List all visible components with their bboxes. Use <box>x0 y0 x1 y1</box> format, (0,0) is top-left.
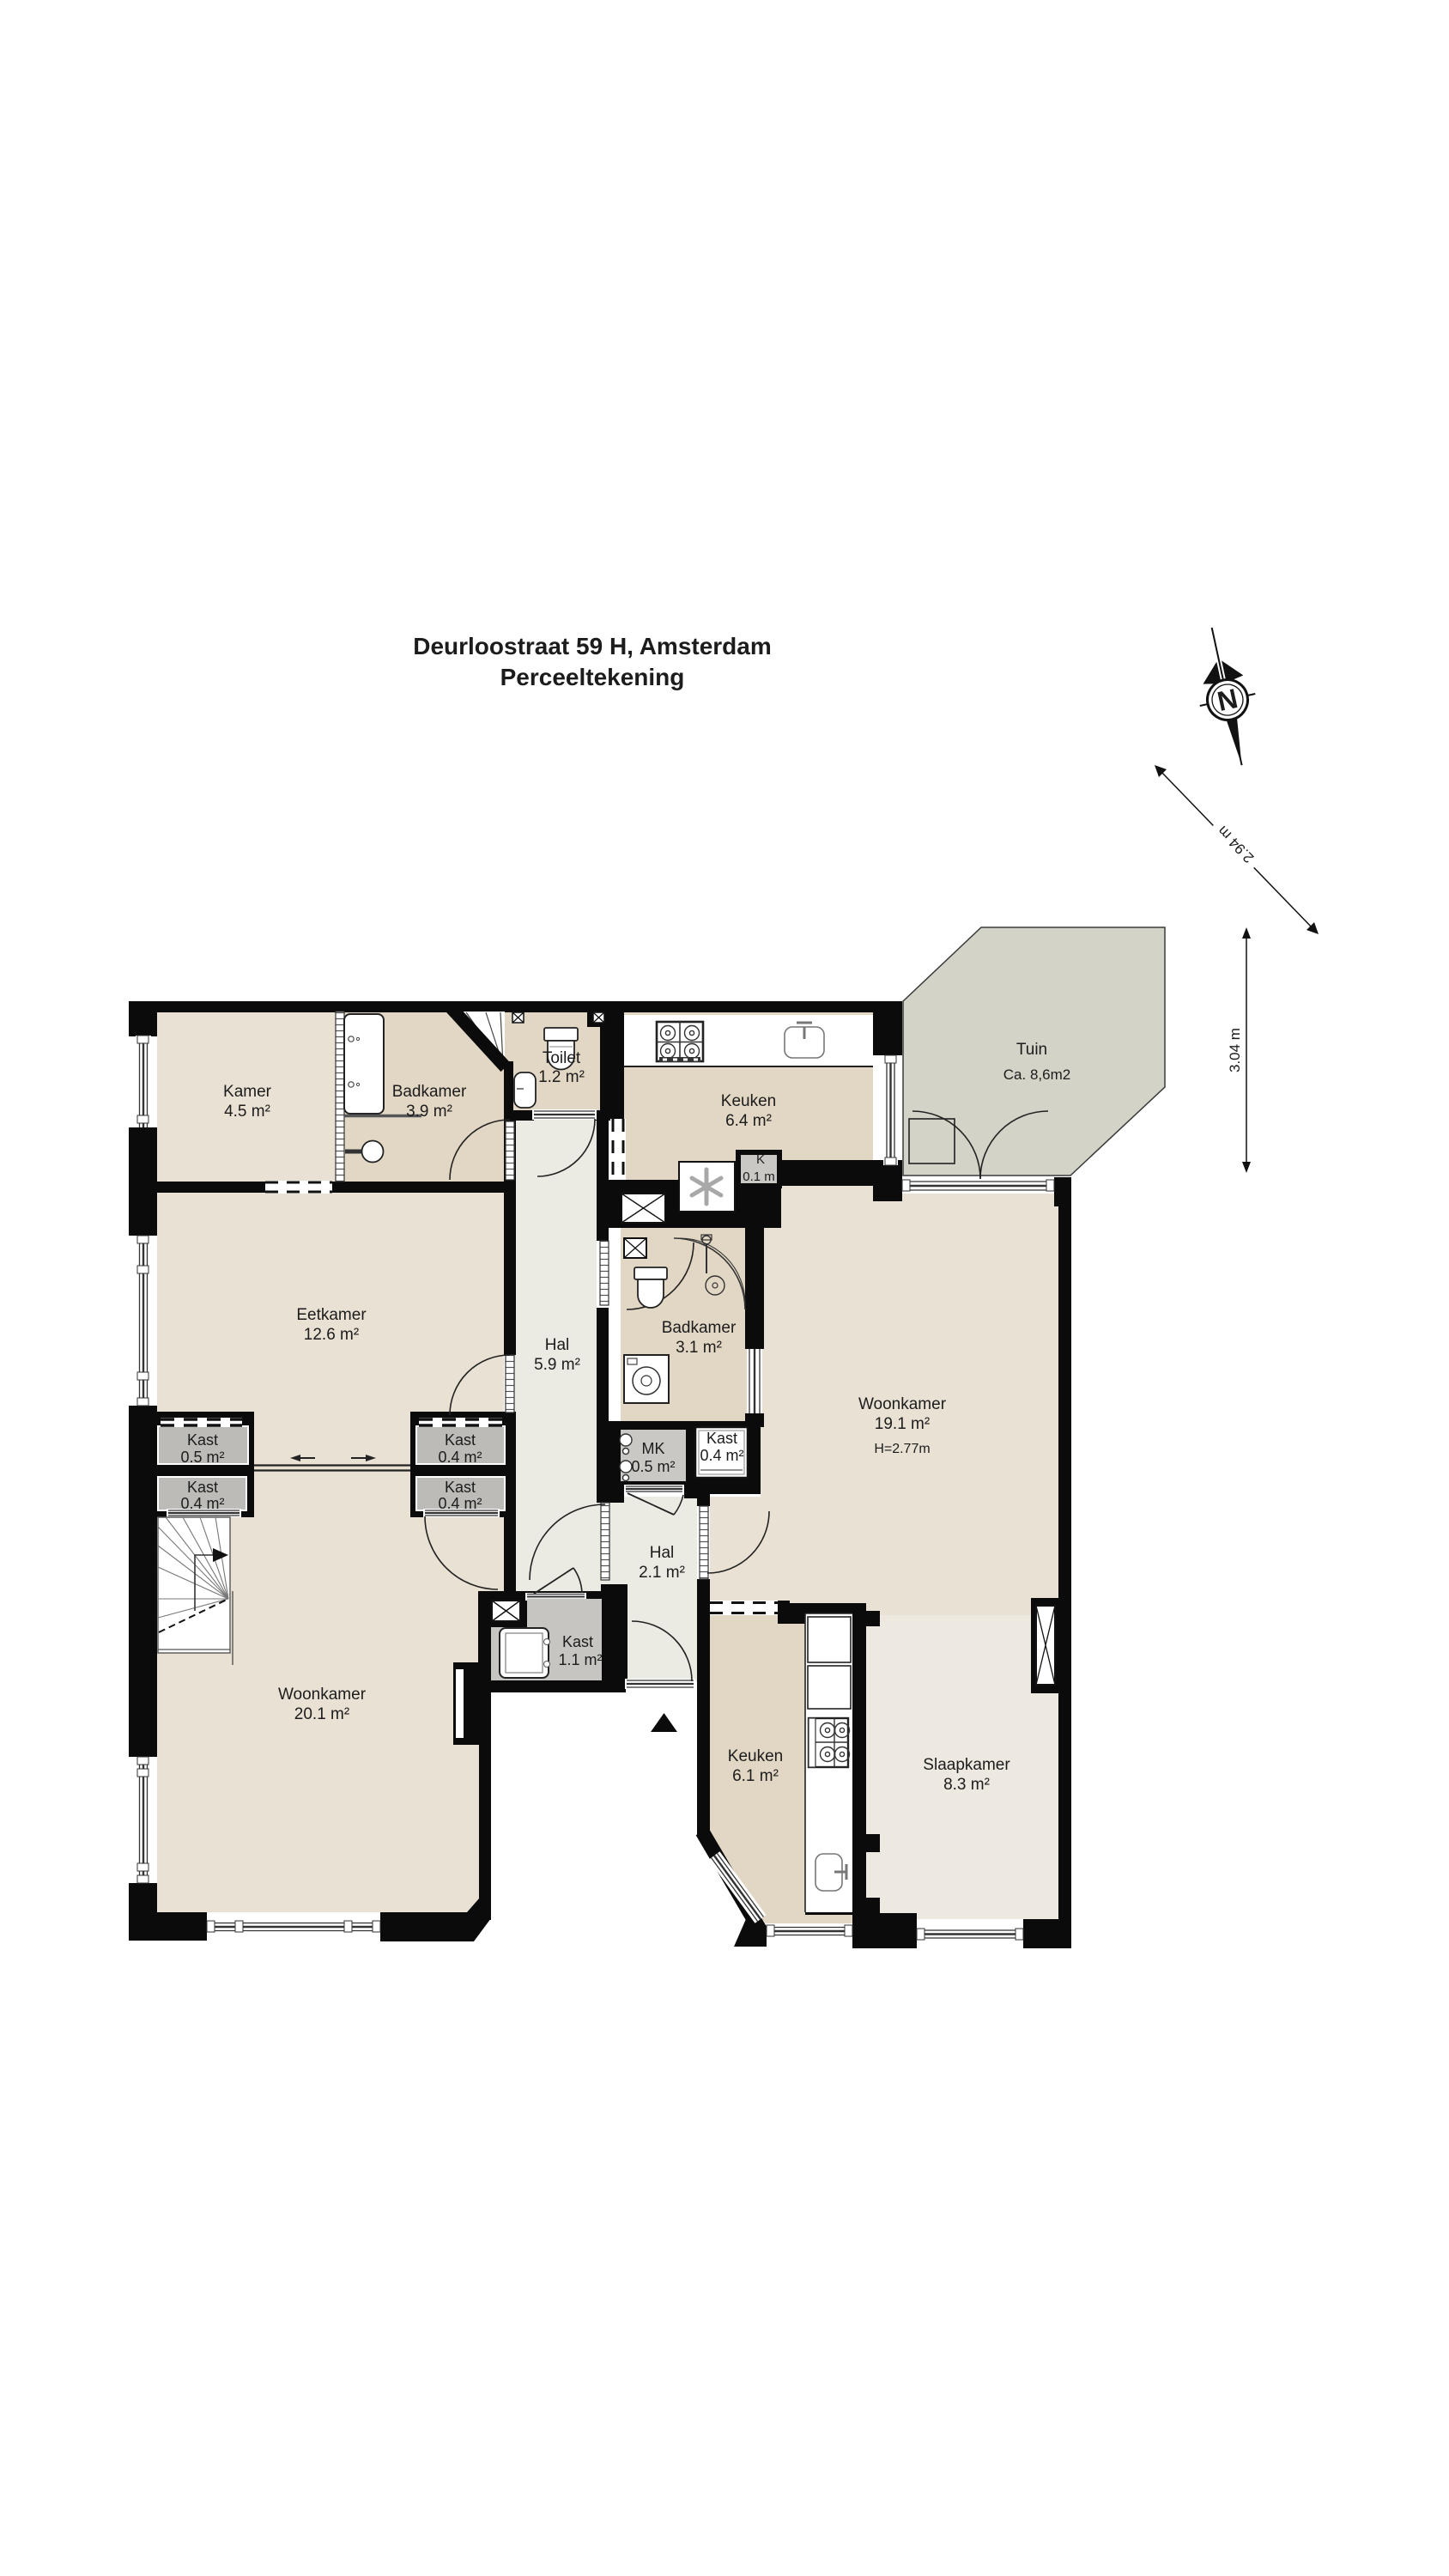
svg-text:Woonkamer: Woonkamer <box>858 1395 947 1413</box>
svg-text:Toilet: Toilet <box>543 1049 581 1067</box>
svg-text:3.9 m²: 3.9 m² <box>406 1103 452 1121</box>
svg-text:Keuken: Keuken <box>721 1092 776 1110</box>
svg-text:Hal: Hal <box>545 1336 570 1354</box>
svg-text:Deurloostraat 59 H, Amsterdam: Deurloostraat 59 H, Amsterdam <box>413 633 772 659</box>
svg-text:4.5 m²: 4.5 m² <box>224 1103 270 1121</box>
svg-text:6.1 m²: 6.1 m² <box>732 1767 779 1785</box>
svg-text:0.1 m: 0.1 m <box>743 1170 775 1184</box>
svg-text:Badkamer: Badkamer <box>392 1083 467 1101</box>
svg-text:H=2.77m: H=2.77m <box>874 1442 930 1456</box>
svg-text:Kast: Kast <box>706 1430 737 1447</box>
svg-text:Kast: Kast <box>445 1431 476 1449</box>
svg-text:0.4 m²: 0.4 m² <box>700 1447 743 1464</box>
svg-text:3.1 m²: 3.1 m² <box>676 1339 722 1357</box>
svg-text:12.6 m²: 12.6 m² <box>304 1326 359 1344</box>
svg-text:Woonkamer: Woonkamer <box>278 1686 367 1704</box>
svg-text:2.1 m²: 2.1 m² <box>639 1564 685 1582</box>
svg-text:Kast: Kast <box>187 1479 218 1496</box>
svg-text:6.4 m²: 6.4 m² <box>725 1112 772 1130</box>
svg-text:0.4 m²: 0.4 m² <box>438 1495 482 1512</box>
svg-text:Tuin: Tuin <box>1016 1041 1047 1059</box>
svg-text:Kast: Kast <box>187 1431 218 1449</box>
svg-text:1.2 m²: 1.2 m² <box>538 1068 585 1086</box>
svg-text:0.5 m²: 0.5 m² <box>631 1458 675 1475</box>
svg-text:5.9 m²: 5.9 m² <box>534 1356 580 1374</box>
svg-text:Hal: Hal <box>650 1544 675 1562</box>
svg-text:3.04 m: 3.04 m <box>1227 1028 1243 1072</box>
svg-text:Kast: Kast <box>562 1633 593 1650</box>
svg-text:Ca. 8,6m2: Ca. 8,6m2 <box>1003 1066 1070 1083</box>
svg-text:Badkamer: Badkamer <box>662 1319 737 1337</box>
svg-text:K: K <box>756 1152 765 1167</box>
svg-text:20.1 m²: 20.1 m² <box>294 1705 349 1723</box>
svg-text:0.5 m²: 0.5 m² <box>180 1449 224 1466</box>
svg-text:Eetkamer: Eetkamer <box>296 1306 367 1324</box>
svg-text:Slaapkamer: Slaapkamer <box>923 1756 1010 1774</box>
svg-text:8.3 m²: 8.3 m² <box>943 1776 990 1794</box>
svg-text:0.4 m²: 0.4 m² <box>438 1449 482 1466</box>
svg-text:Perceeltekening: Perceeltekening <box>500 664 685 690</box>
svg-text:0.4 m²: 0.4 m² <box>180 1495 224 1512</box>
svg-text:Keuken: Keuken <box>728 1747 783 1765</box>
svg-text:MK: MK <box>642 1440 665 1457</box>
svg-text:1.1 m²: 1.1 m² <box>558 1651 602 1668</box>
svg-text:19.1 m²: 19.1 m² <box>875 1415 930 1433</box>
svg-text:Kamer: Kamer <box>223 1083 272 1101</box>
svg-text:Kast: Kast <box>445 1479 476 1496</box>
